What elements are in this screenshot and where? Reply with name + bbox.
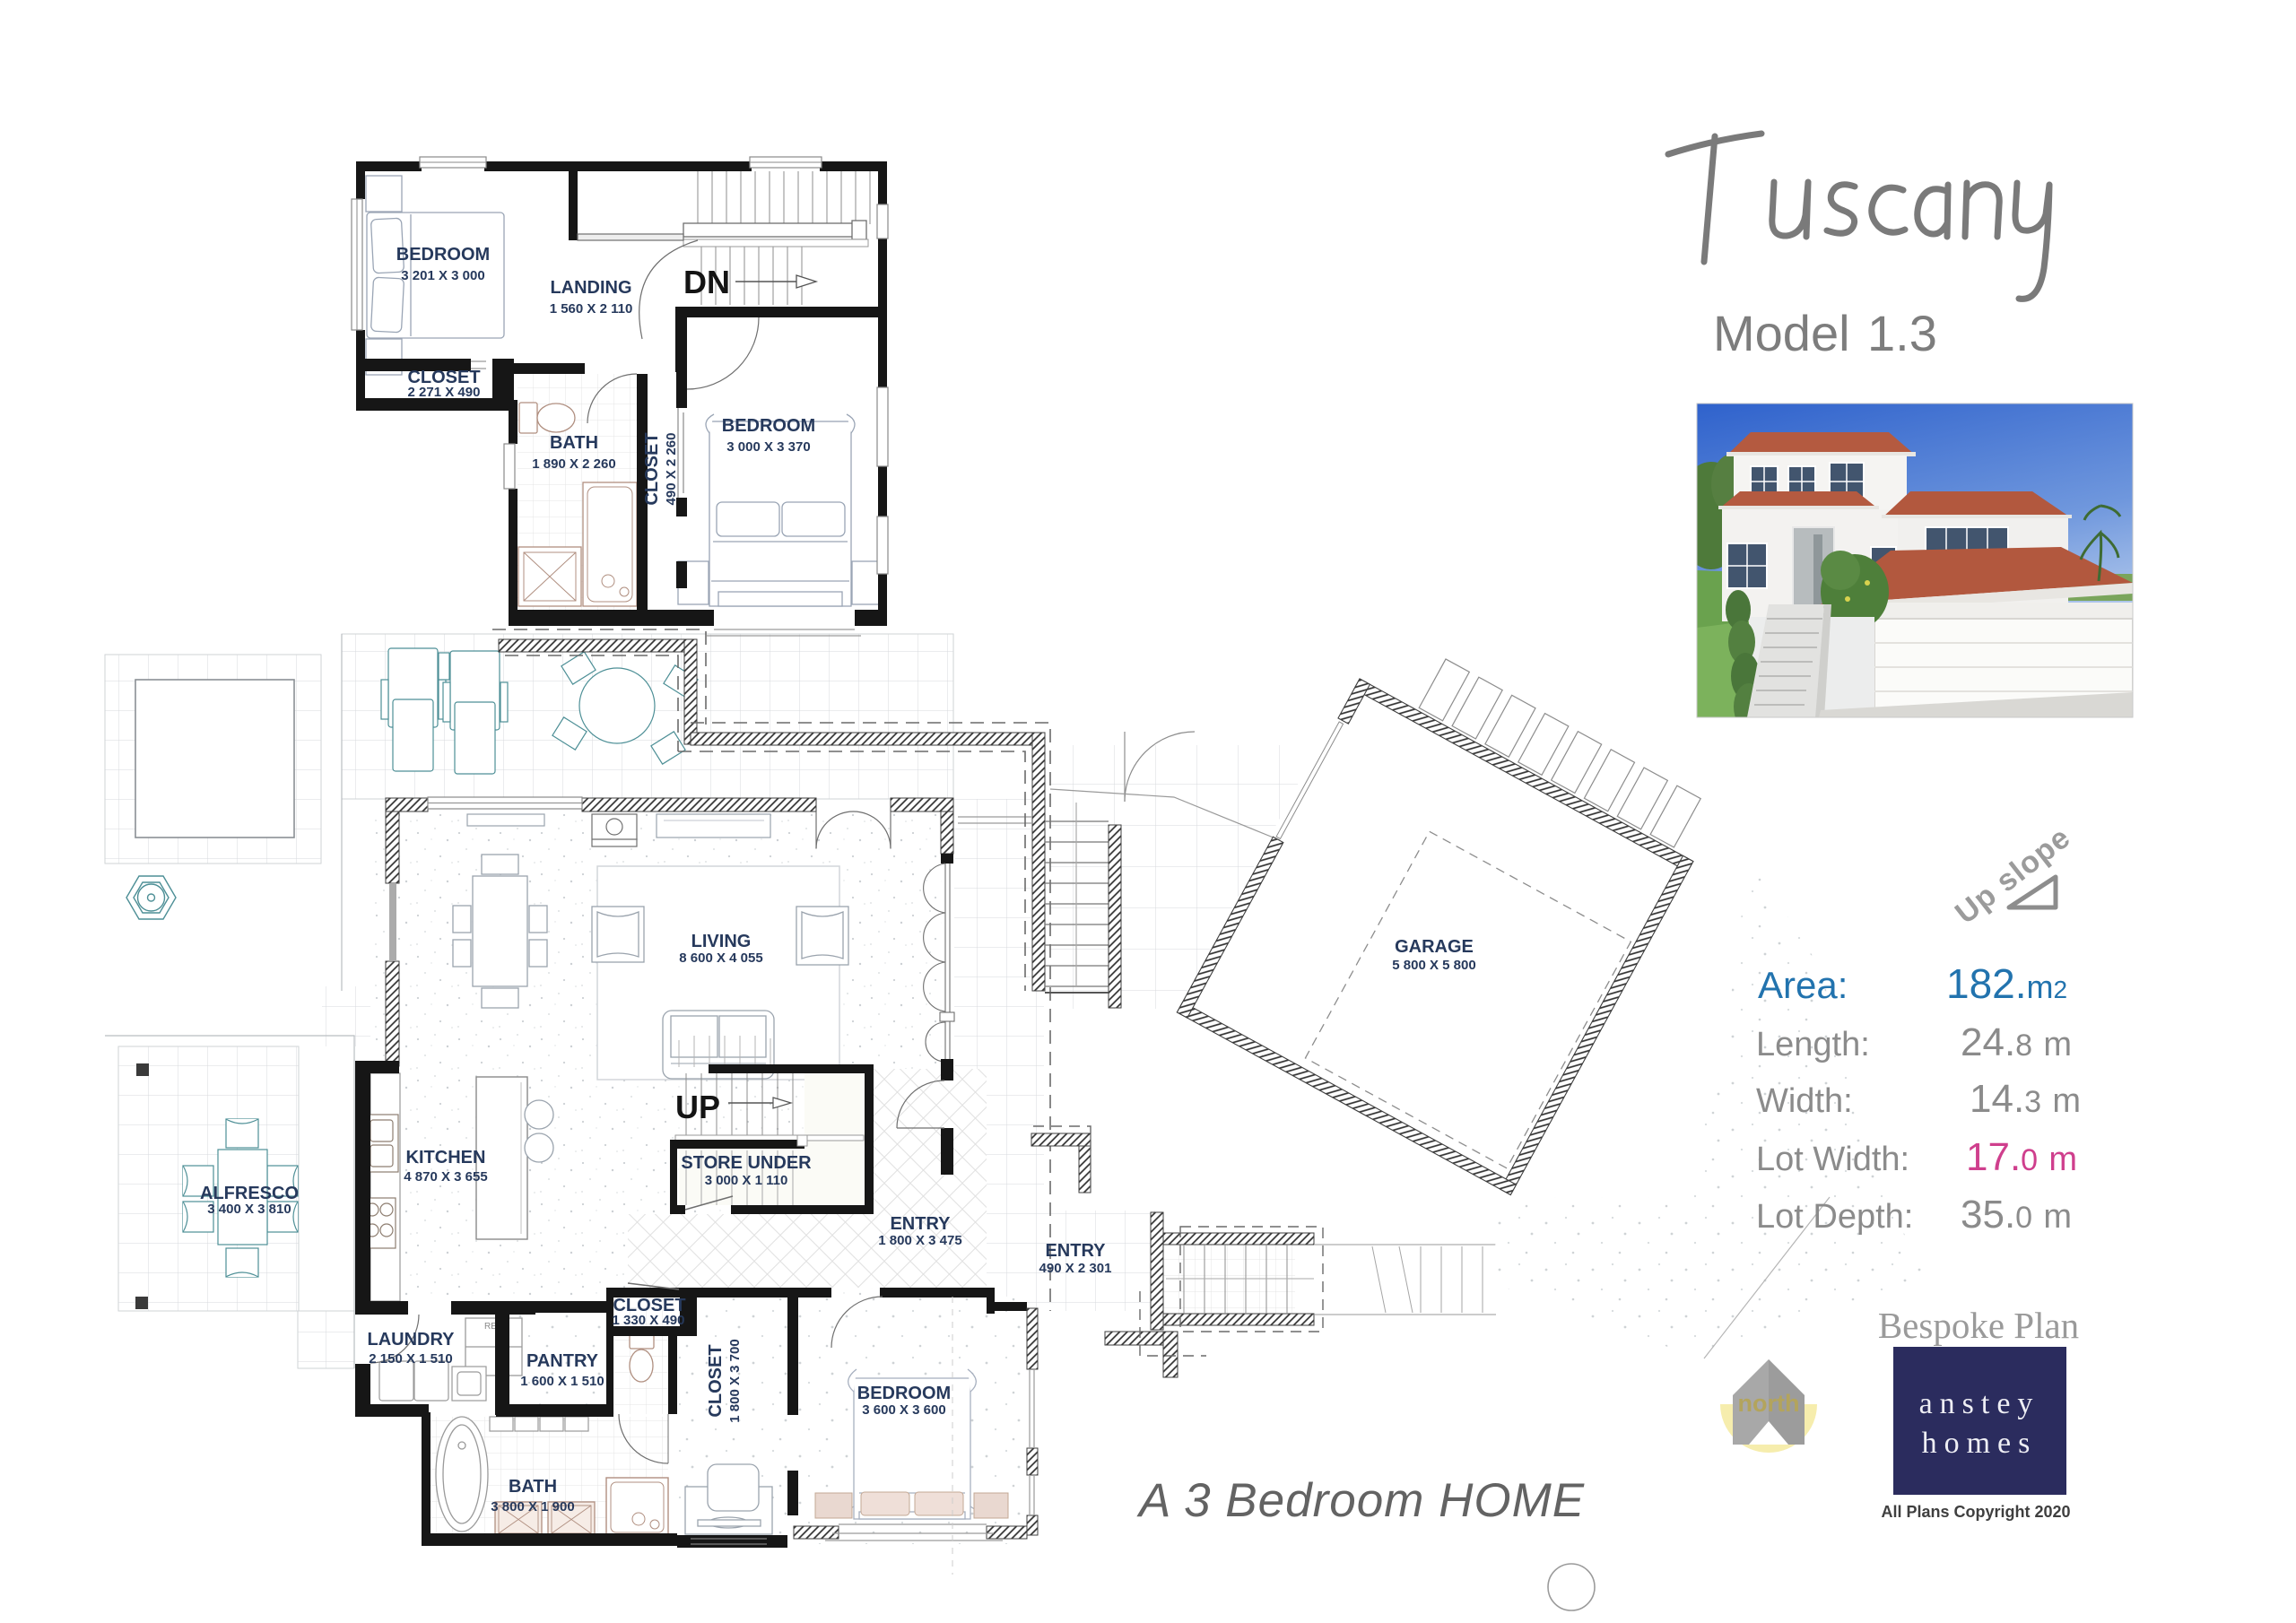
svg-text:CLOSET: CLOSET [642,432,662,505]
svg-text:3 600 X 3 600: 3 600 X 3 600 [862,1402,945,1418]
svg-text:Bespoke Plan: Bespoke Plan [1878,1305,2079,1346]
svg-text:anstey: anstey [1919,1387,2040,1420]
svg-text:ALFRESCO: ALFRESCO [200,1184,299,1203]
svg-text:Lot Width:: Lot Width: [1756,1141,1909,1178]
svg-text:1.3: 1.3 [1867,305,1937,361]
svg-text:2 271 X 490: 2 271 X 490 [408,385,481,400]
svg-text:PANTRY: PANTRY [526,1351,599,1371]
svg-text:3 000 X 1 110: 3 000 X 1 110 [705,1173,788,1188]
svg-text:ENTRY: ENTRY [890,1214,951,1234]
svg-text:Lot Depth:: Lot Depth: [1756,1198,1913,1236]
svg-text:KITCHEN: KITCHEN [406,1148,486,1167]
svg-text:1 600 X 1 510: 1 600 X 1 510 [520,1374,604,1389]
svg-text:BATH: BATH [550,433,598,453]
svg-text:Length:: Length: [1756,1026,1870,1063]
svg-text:All Plans Copyright 2020: All Plans Copyright 2020 [1881,1503,2070,1521]
svg-text:3 201 X 3 000: 3 201 X 3 000 [401,268,484,283]
svg-text:A 3 Bedroom HOME: A 3 Bedroom HOME [1136,1474,1585,1527]
svg-text:3 800 X 1 900: 3 800 X 1 900 [491,1499,574,1515]
svg-text:2 150 X 1 510: 2 150 X 1 510 [369,1351,452,1367]
svg-text:8 600 X 4 055: 8 600 X 4 055 [679,950,762,966]
svg-text:STORE UNDER: STORE UNDER [681,1153,812,1173]
svg-text:1 800 X 3 475: 1 800 X 3 475 [878,1233,961,1248]
svg-text:DN: DN [683,264,730,300]
svg-text:BATH: BATH [509,1477,557,1497]
svg-text:5 800 X 5 800: 5 800 X 5 800 [1392,958,1475,973]
svg-text:LAUNDRY: LAUNDRY [367,1330,455,1350]
svg-text:3 400 X 3 810: 3 400 X 3 810 [207,1202,291,1217]
svg-text:490 X 2 260: 490 X 2 260 [664,433,679,506]
svg-text:Width:: Width: [1756,1082,1853,1120]
svg-text:1 800 X 3 700: 1 800 X 3 700 [727,1339,743,1422]
svg-text:homes: homes [1922,1427,2038,1460]
svg-text:CLOSET: CLOSET [706,1344,726,1417]
svg-text:BEDROOM: BEDROOM [857,1384,951,1403]
svg-text:ENTRY: ENTRY [1045,1241,1106,1261]
svg-text:north: north [1738,1390,1800,1417]
svg-text:1 890 X 2 260: 1 890 X 2 260 [532,456,615,472]
svg-text:3 000 X 3 370: 3 000 X 3 370 [726,439,810,455]
svg-text:4 870 X 3 655: 4 870 X 3 655 [404,1169,487,1185]
svg-text:490 X 2 301: 490 X 2 301 [1039,1261,1112,1276]
svg-text:GARAGE: GARAGE [1395,937,1474,957]
svg-text:BEDROOM: BEDROOM [722,416,815,436]
svg-text:LIVING: LIVING [691,932,752,951]
svg-text:BEDROOM: BEDROOM [396,245,490,265]
svg-text:1 330 X 490: 1 330 X 490 [613,1313,685,1328]
svg-text:LANDING: LANDING [550,278,631,298]
svg-text:Area:: Area: [1758,964,1848,1006]
svg-text:1 560 X 2 110: 1 560 X 2 110 [550,301,633,317]
svg-text:UP: UP [675,1089,720,1125]
svg-text:Model: Model [1713,305,1850,361]
